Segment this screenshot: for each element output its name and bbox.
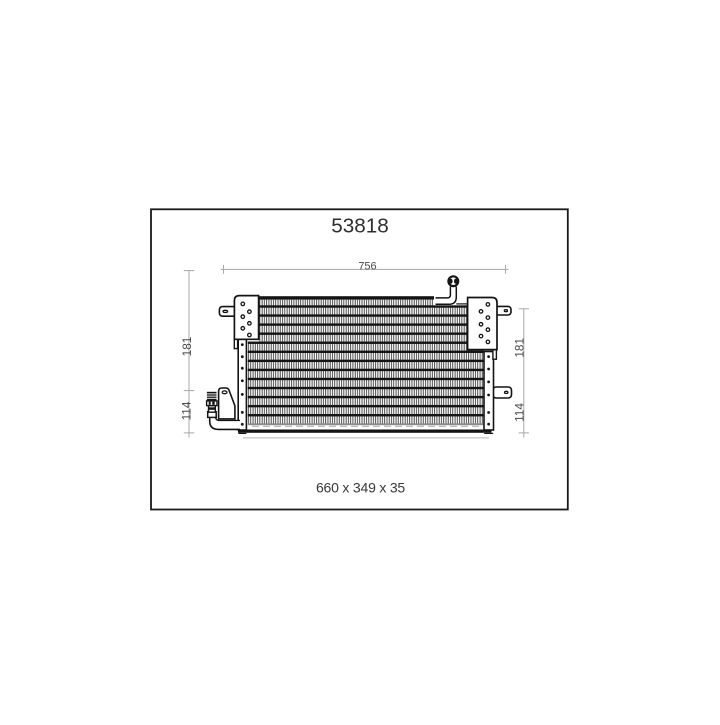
svg-text:181: 181 [513,338,527,358]
svg-text:53818: 53818 [331,215,389,238]
svg-text:660 x 349 x 35: 660 x 349 x 35 [316,480,405,496]
svg-text:114: 114 [513,403,527,422]
svg-text:114: 114 [179,401,193,420]
svg-text:756: 756 [358,261,376,273]
svg-text:181: 181 [180,337,194,357]
